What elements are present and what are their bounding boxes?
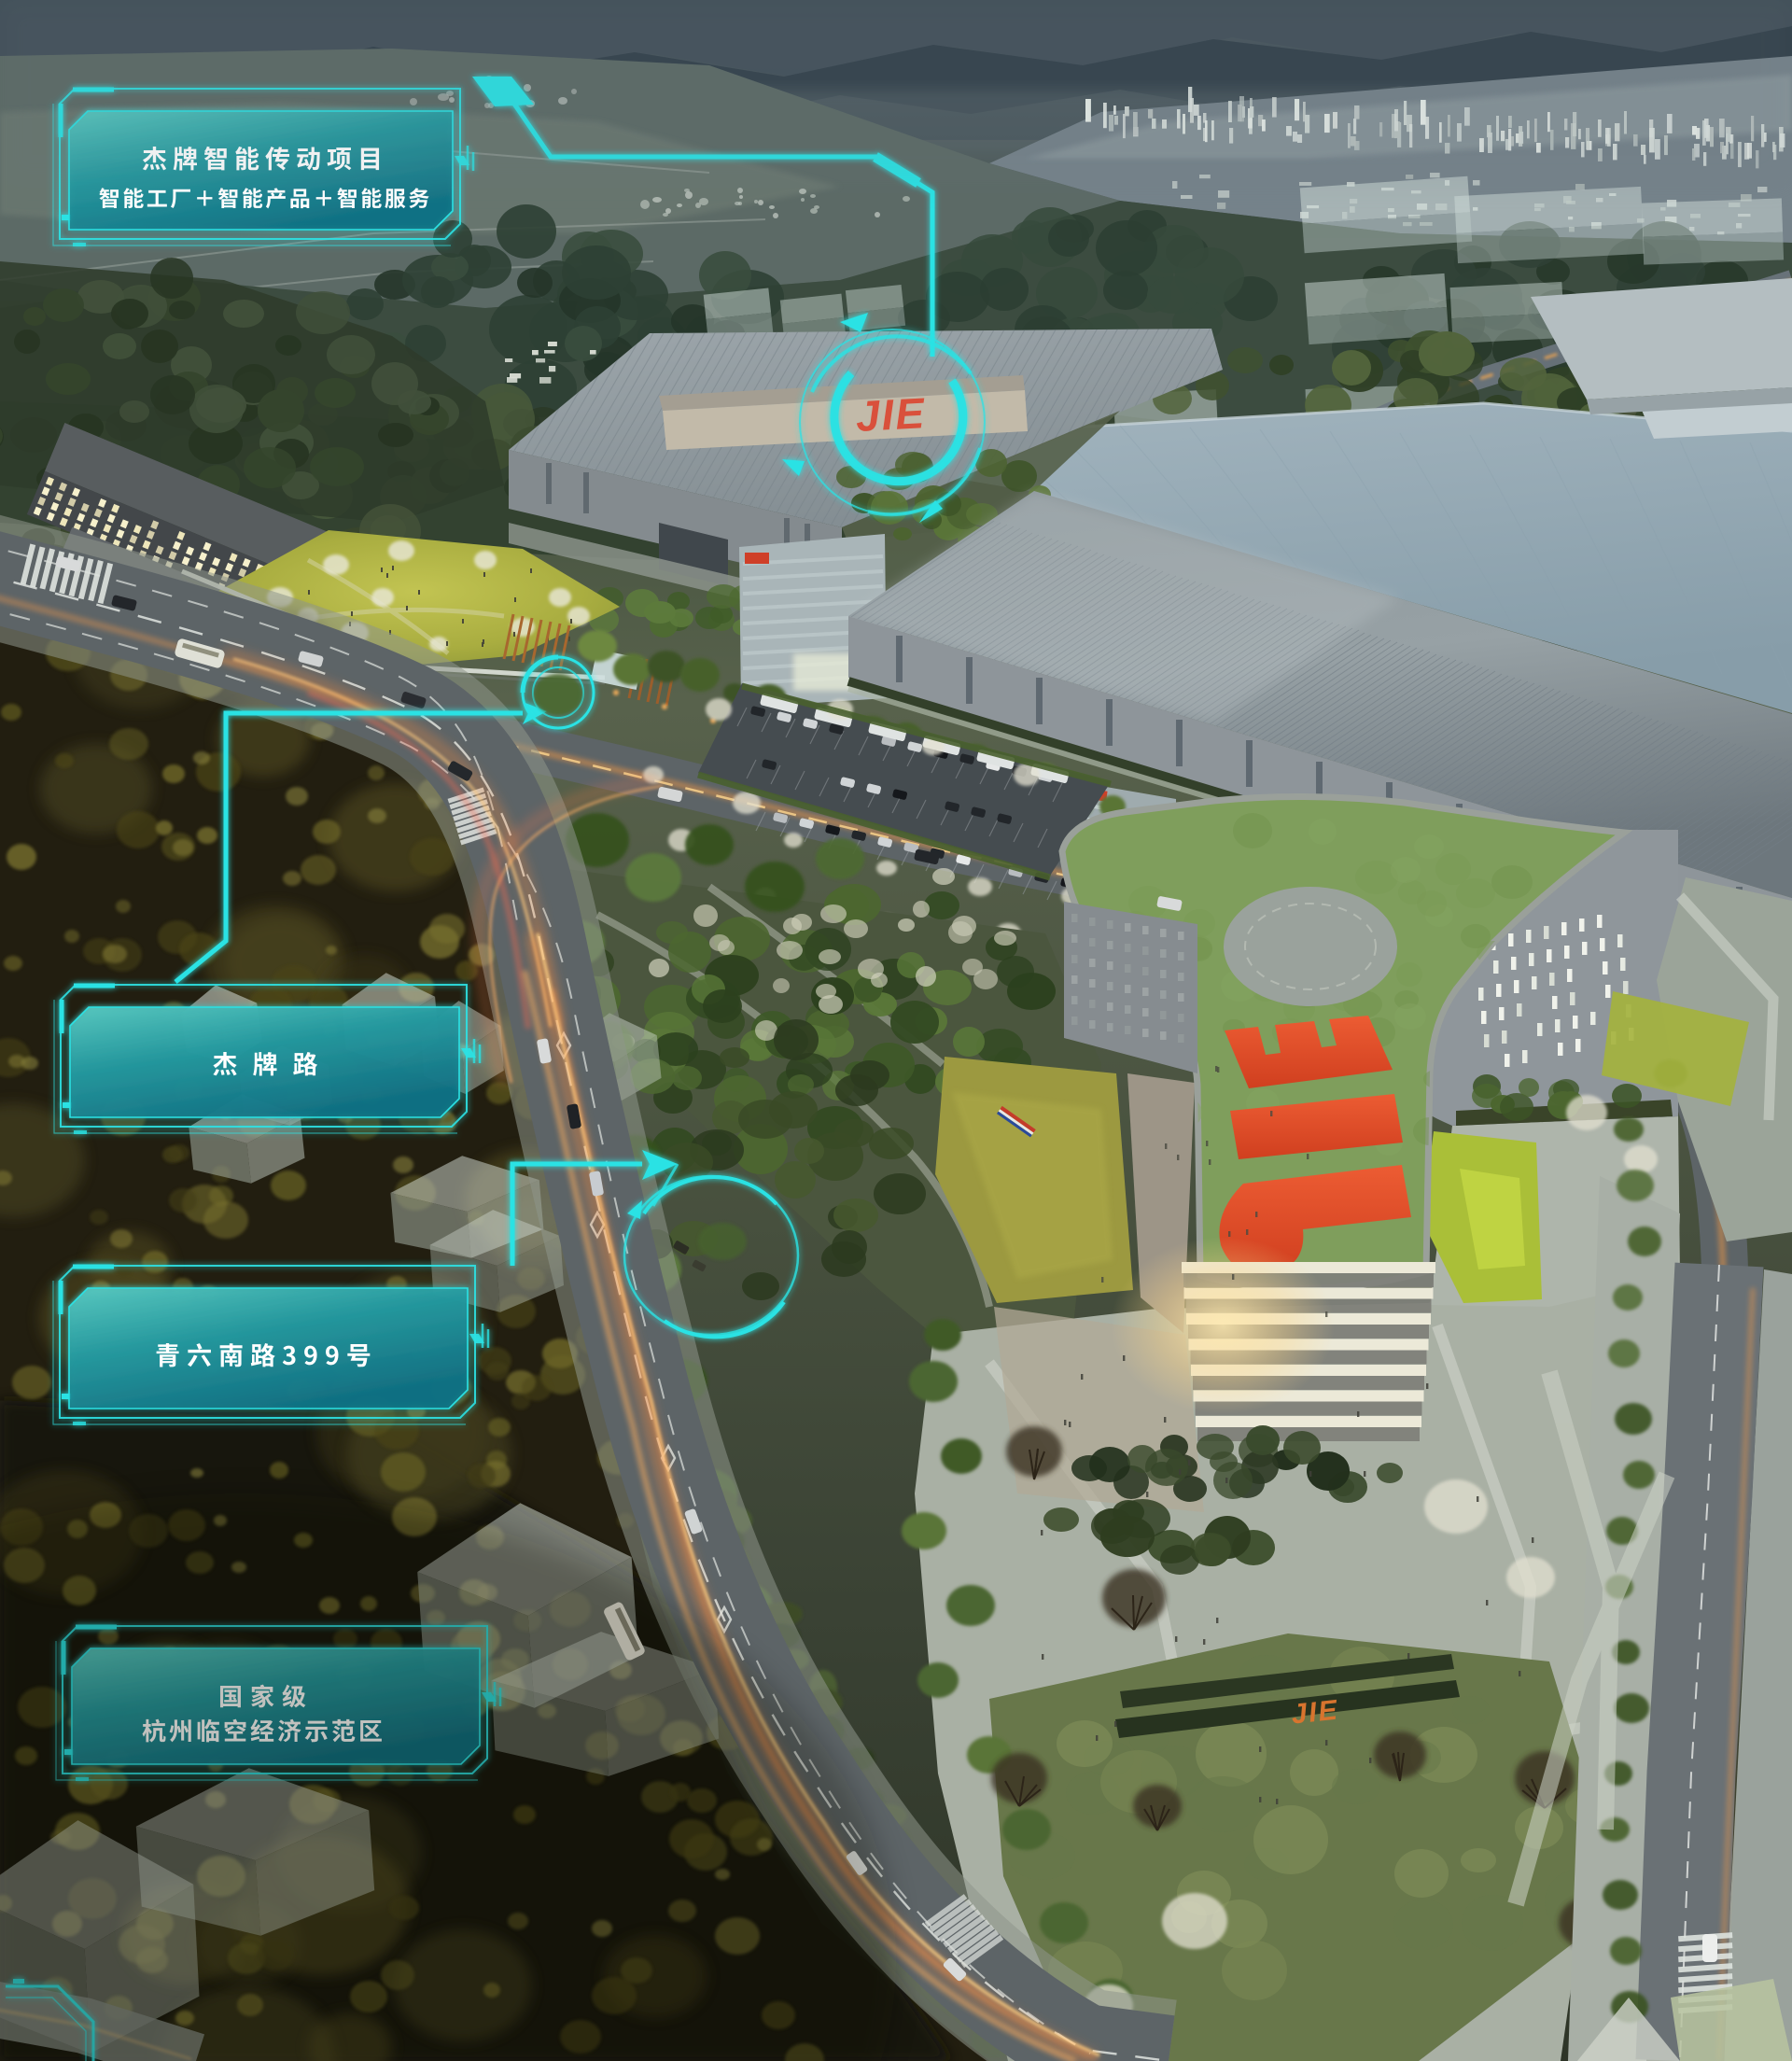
svg-text:JIE: JIE bbox=[1290, 1694, 1340, 1730]
svg-text:JIE: JIE bbox=[855, 388, 928, 441]
